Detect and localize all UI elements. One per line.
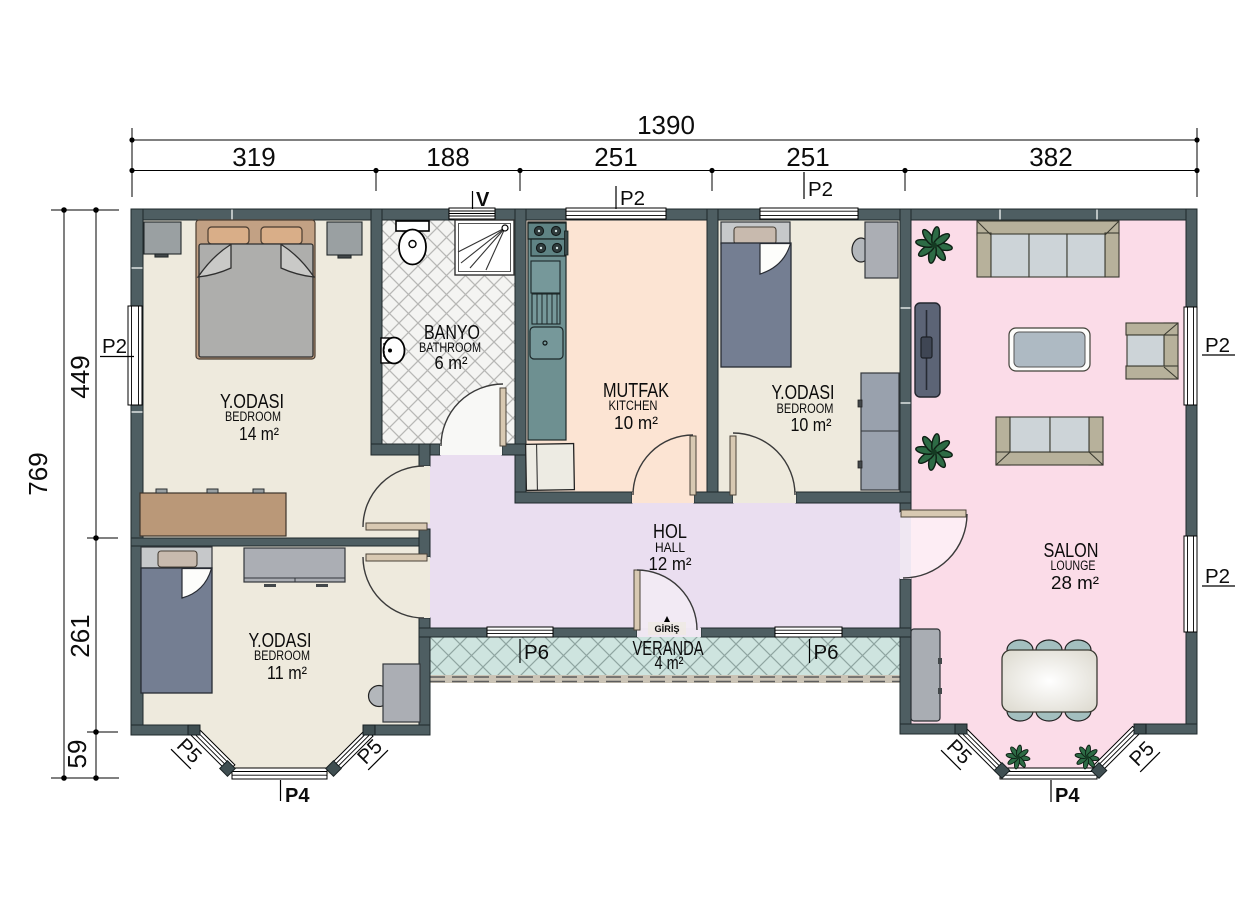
svg-text:GİRİŞ: GİRİŞ: [655, 624, 680, 635]
svg-text:10 m²: 10 m²: [614, 413, 658, 433]
svg-text:1390: 1390: [637, 110, 695, 140]
svg-text:P6: P6: [524, 641, 549, 664]
svg-text:6 m²: 6 m²: [435, 353, 468, 373]
svg-text:4 m²: 4 m²: [655, 653, 684, 673]
svg-text:11 m²: 11 m²: [267, 663, 307, 683]
svg-text:P4: P4: [285, 785, 310, 807]
svg-text:P4: P4: [1055, 785, 1080, 807]
svg-text:KITCHEN: KITCHEN: [609, 398, 658, 413]
svg-text:P2: P2: [808, 178, 833, 201]
svg-text:12 m²: 12 m²: [649, 554, 692, 574]
svg-text:10 m²: 10 m²: [791, 415, 832, 435]
svg-text:BEDROOM: BEDROOM: [777, 401, 834, 416]
svg-text:P2: P2: [620, 187, 645, 210]
svg-text:382: 382: [1029, 142, 1072, 172]
svg-text:14 m²: 14 m²: [239, 424, 279, 444]
svg-text:188: 188: [426, 142, 469, 172]
svg-text:769: 769: [23, 452, 53, 495]
svg-text:449: 449: [65, 355, 95, 398]
svg-text:261: 261: [65, 614, 95, 657]
svg-text:319: 319: [232, 142, 275, 172]
svg-text:BEDROOM: BEDROOM: [254, 648, 310, 663]
svg-text:P2: P2: [1205, 334, 1230, 357]
svg-text:HALL: HALL: [655, 540, 685, 555]
svg-text:P6: P6: [814, 641, 839, 664]
svg-text:251: 251: [786, 142, 829, 172]
svg-text:LOUNGE: LOUNGE: [1051, 558, 1096, 573]
svg-text:59: 59: [62, 740, 92, 769]
svg-text:251: 251: [594, 142, 637, 172]
svg-text:P2: P2: [1205, 565, 1230, 588]
svg-text:28 m²: 28 m²: [1051, 573, 1099, 593]
svg-text:P2: P2: [102, 335, 127, 358]
svg-text:V: V: [476, 189, 490, 211]
svg-text:BEDROOM: BEDROOM: [225, 409, 281, 424]
